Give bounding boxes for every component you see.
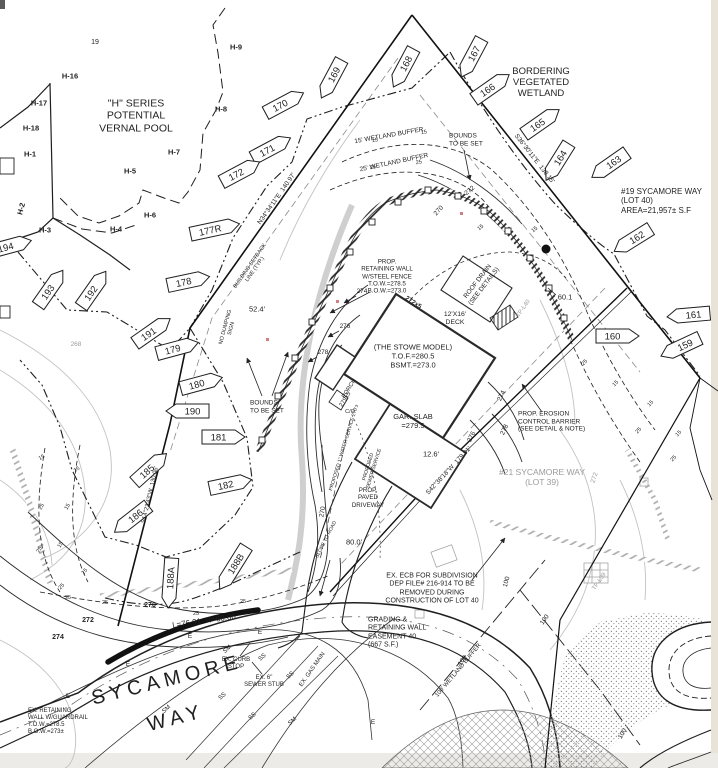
bound-point xyxy=(542,245,551,254)
house xyxy=(315,252,566,508)
site-plan-canvas: 167168169170171172177R178179180190181182… xyxy=(0,0,718,768)
sewer-service-2 xyxy=(204,646,318,768)
existing-hatched-bands xyxy=(12,448,700,596)
porch-steps xyxy=(329,390,348,410)
electric-line xyxy=(28,630,372,740)
lot39-east-line xyxy=(560,378,700,620)
scan-edge-right xyxy=(711,0,718,768)
road-sycamore-way xyxy=(0,603,628,768)
sewer-service-3 xyxy=(224,656,338,768)
property-lines-topleft xyxy=(0,83,130,318)
scan-corner-mark xyxy=(0,0,5,9)
house-main xyxy=(344,294,495,438)
vernal-pool-outline xyxy=(53,8,225,233)
site-plan-linework xyxy=(0,0,718,768)
gas-line xyxy=(262,618,395,768)
sewer-service-1 xyxy=(186,636,300,760)
bottom-right-features xyxy=(540,378,711,768)
gray-structures xyxy=(415,478,648,618)
wetland-lines xyxy=(18,52,700,605)
